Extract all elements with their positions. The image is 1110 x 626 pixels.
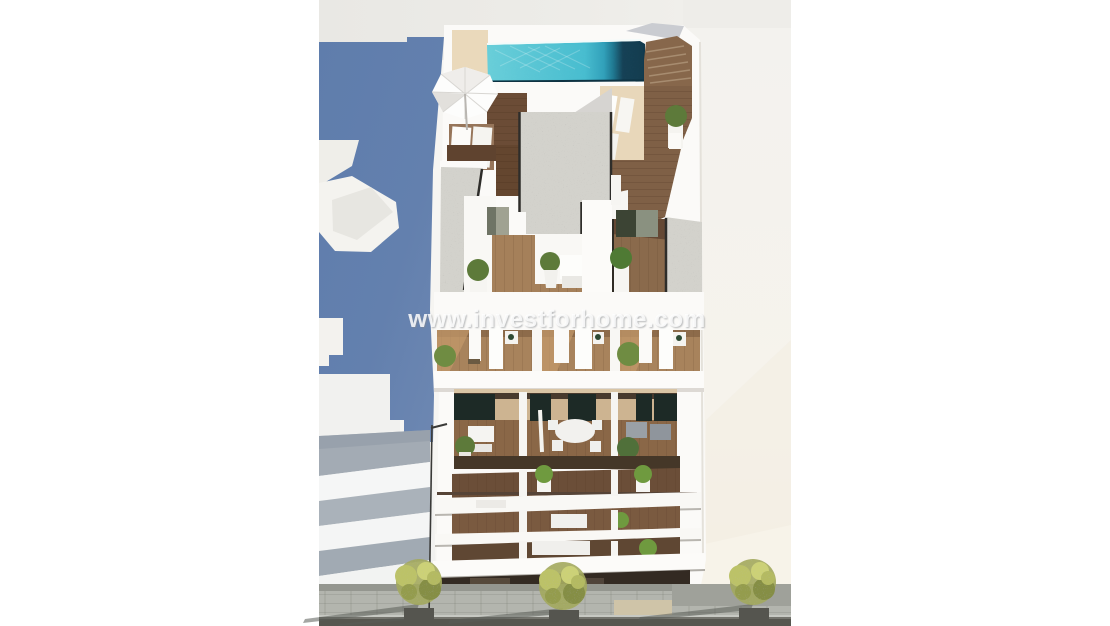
svg-text:www.investforhome.com: www.investforhome.com bbox=[407, 306, 705, 333]
